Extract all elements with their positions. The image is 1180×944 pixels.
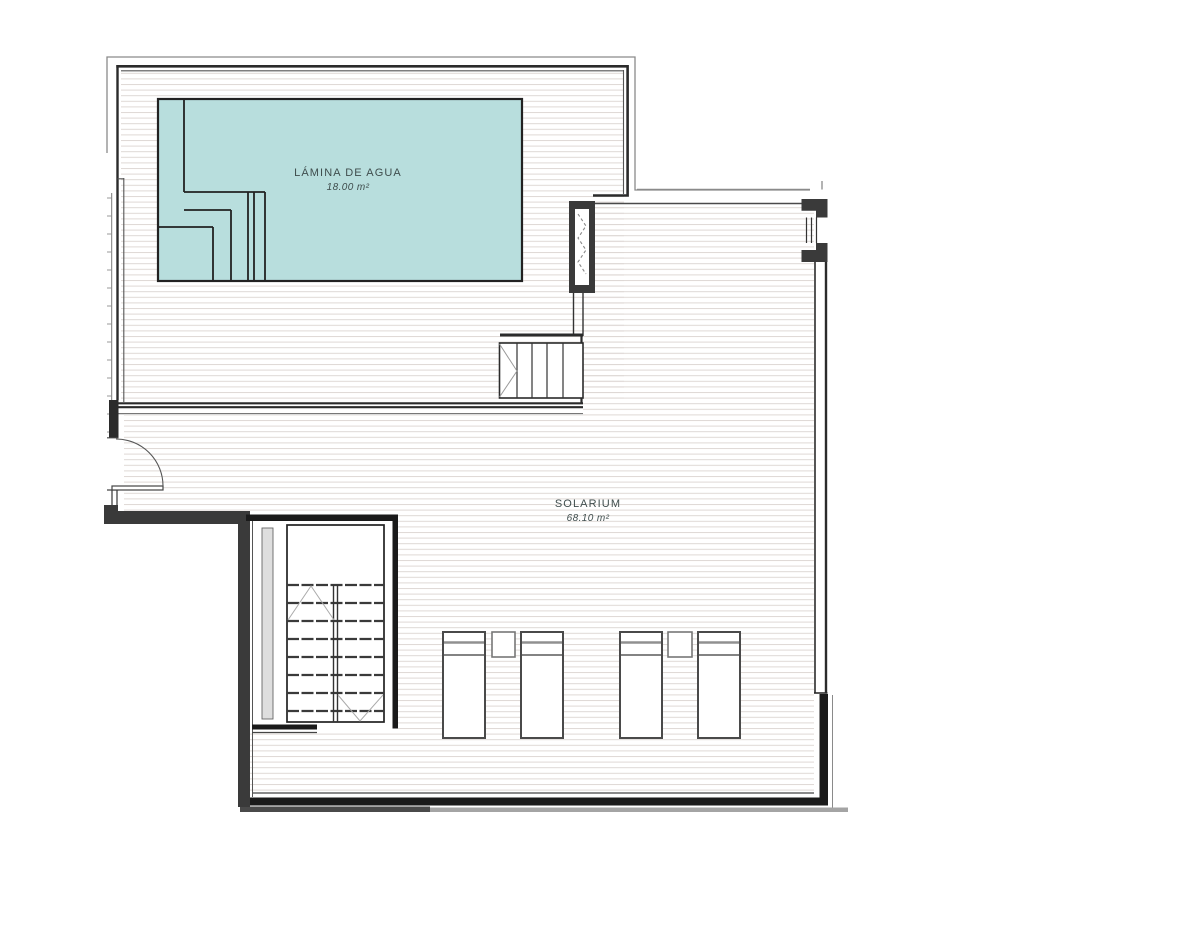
door-jamb-wall-upper	[109, 400, 119, 438]
stair-enclosure-north-wall	[246, 515, 398, 522]
stair-side-wall	[262, 528, 273, 719]
lounger-3	[620, 632, 662, 738]
south-section	[240, 793, 848, 812]
solarium-area-label: 68.10 m²	[567, 513, 610, 524]
stair-enclosure-south-wall	[252, 725, 317, 730]
deck-south-double-wall	[117, 403, 583, 407]
floor-plan-canvas: LÁMINA DE AGUA 18.00 m² SOLARIUM 68.10 m…	[0, 0, 1180, 944]
lounger-1	[443, 632, 485, 738]
upper-stair	[500, 343, 584, 398]
solarium-label: SOLARIUM	[555, 498, 621, 510]
pool-label: LÁMINA DE AGUA	[294, 166, 402, 179]
door-leaf	[112, 486, 163, 490]
south-shadow-light	[430, 808, 848, 813]
west-thick-wall-vertical	[238, 511, 250, 807]
lounger-2	[521, 632, 563, 738]
west-offset-ticks	[107, 198, 112, 432]
west-thick-wall-horizontal	[104, 511, 246, 524]
lounger-4	[698, 632, 740, 738]
solarium-west-hatch	[124, 415, 583, 511]
pool-area-label: 18.00 m²	[327, 182, 370, 193]
east-parapet-wall	[820, 694, 829, 805]
floor-plan-drawing: LÁMINA DE AGUA 18.00 m² SOLARIUM 68.10 m…	[0, 0, 1180, 944]
south-shadow-dark	[240, 807, 430, 813]
side-table-1	[492, 632, 515, 657]
south-parapet-wall	[250, 798, 828, 806]
door-jamb-ticks	[107, 438, 119, 490]
stair-enclosure-east-wall	[393, 515, 399, 729]
side-table-2	[668, 632, 692, 657]
upper-stair-box	[500, 343, 584, 398]
